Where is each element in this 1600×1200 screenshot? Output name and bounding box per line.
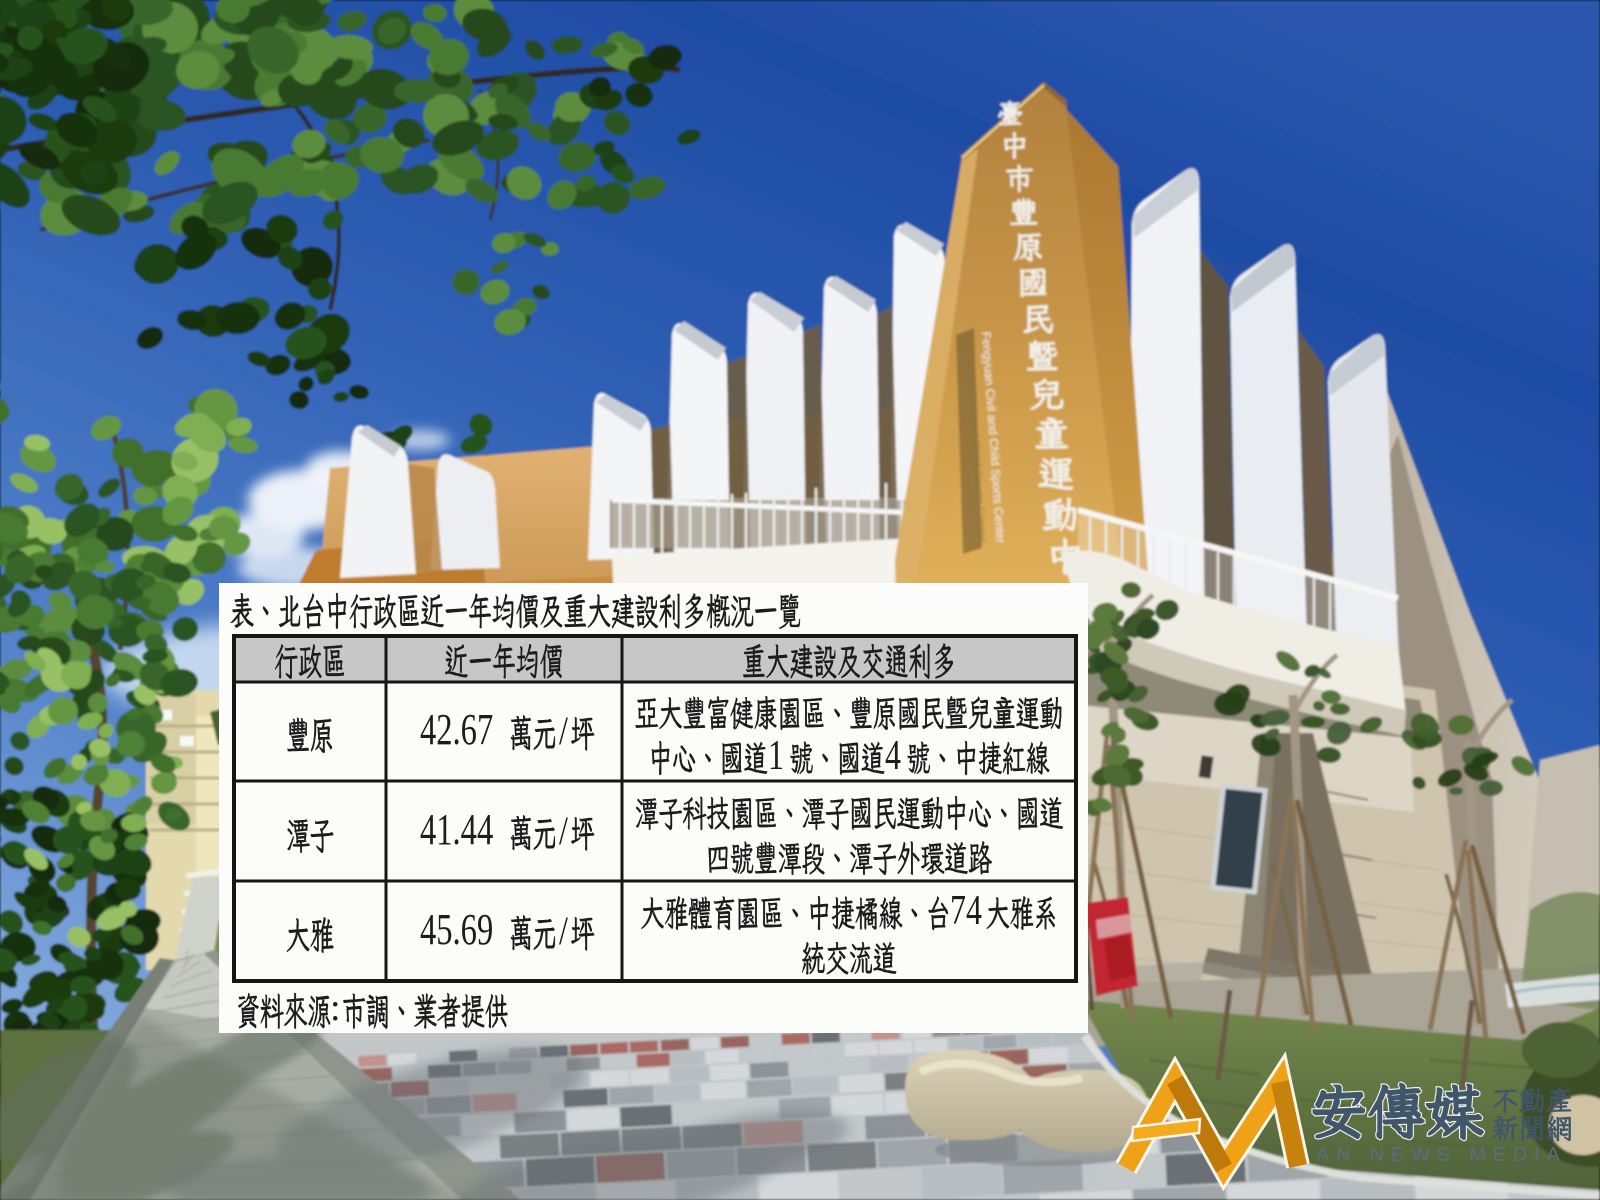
svg-text:41.44: 41.44 (420, 806, 493, 854)
svg-text:1: 1 (768, 733, 784, 779)
svg-text:AN NEWS MEDIA: AN NEWS MEDIA (1316, 1144, 1567, 1166)
svg-text:4: 4 (885, 733, 901, 779)
svg-text:/: / (559, 809, 569, 853)
svg-text:/: / (559, 909, 569, 953)
svg-text:74: 74 (950, 888, 982, 934)
svg-text:42.67: 42.67 (420, 706, 493, 754)
svg-text:/: / (559, 709, 569, 753)
svg-text:45.69: 45.69 (420, 906, 493, 954)
svg-text::: : (330, 987, 341, 1029)
